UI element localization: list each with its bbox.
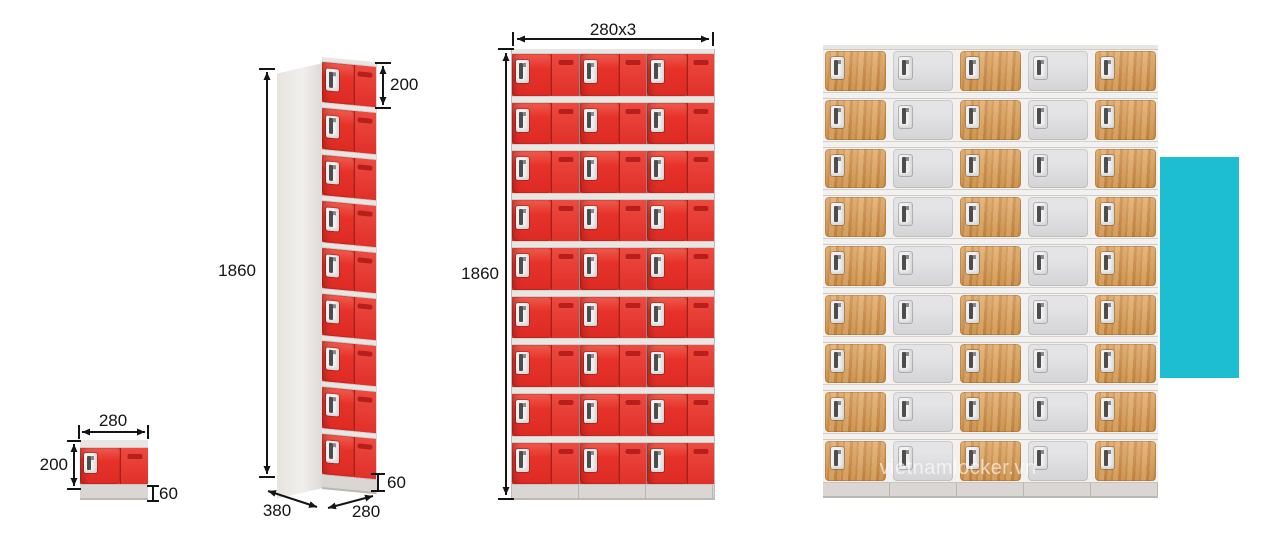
locker-cell-gray (891, 343, 956, 385)
handle-latch (654, 160, 658, 176)
locker-body (354, 158, 376, 201)
locker-door (893, 246, 954, 286)
locker-door (647, 345, 686, 387)
cyan-accent-rectangle (1160, 157, 1239, 378)
locker-door (647, 103, 686, 145)
locker-cell-wood (823, 148, 888, 190)
locker-row (322, 201, 376, 247)
locker-cell-red (512, 54, 579, 96)
handle-latch (834, 352, 838, 368)
locker-door (512, 345, 551, 387)
door-handle (516, 352, 529, 375)
handle-latch (902, 60, 906, 76)
locker-body (551, 54, 578, 96)
vent-slot (693, 157, 708, 162)
row-separator (823, 287, 1158, 294)
door-handle (831, 350, 844, 372)
tall-locker-side-panel (277, 63, 323, 499)
door-handle (516, 400, 529, 423)
locker-body (619, 443, 646, 485)
vent-slot (358, 211, 373, 217)
locker-row (322, 387, 376, 433)
locker-body (120, 448, 148, 484)
door-handle (831, 252, 844, 274)
locker-cell-wood (1093, 196, 1158, 238)
locker-door (647, 151, 686, 193)
vent-slot (558, 351, 573, 356)
handle-latch (519, 451, 523, 467)
tall-base-label: 60 (387, 474, 417, 491)
locker-cell-gray (1026, 245, 1091, 287)
locker-cell-wood (1093, 440, 1158, 482)
locker-door (893, 344, 954, 384)
row-separator (823, 336, 1158, 343)
locker-cell-gray (891, 148, 956, 190)
locker-row (322, 108, 376, 154)
locker-cell-wood (958, 50, 1023, 92)
locker-cell-red (322, 62, 376, 108)
locker-cell-gray (891, 99, 956, 141)
locker-body (551, 297, 578, 339)
handle-latch (969, 157, 973, 173)
vent-slot (693, 60, 708, 65)
locker-door (960, 51, 1021, 91)
locker-door (1028, 51, 1089, 91)
locker-door (647, 443, 686, 485)
handle-latch (587, 354, 591, 370)
locker-cell-red (322, 387, 376, 433)
handle-latch (587, 403, 591, 419)
handle-latch (329, 257, 333, 273)
door-handle (84, 453, 97, 473)
locker-cell-red (512, 345, 579, 387)
locker-door (1028, 344, 1089, 384)
door-handle (326, 161, 339, 184)
locker-door (1028, 197, 1089, 237)
vent-slot (626, 400, 641, 405)
locker-door (1095, 441, 1156, 481)
vent-slot (626, 254, 641, 259)
door-handle (831, 106, 844, 128)
locker-door (825, 197, 886, 237)
locker-door (825, 246, 886, 286)
handle-latch (587, 257, 591, 273)
door-handle (584, 449, 597, 472)
door-handle (516, 303, 529, 326)
locker-cell-wood (1093, 99, 1158, 141)
locker-door (893, 392, 954, 432)
handle-latch (902, 352, 906, 368)
row-separator (512, 338, 714, 345)
locker-row (823, 148, 1158, 190)
handle-latch (587, 63, 591, 79)
locker-body (687, 297, 714, 339)
locker-cell-red (580, 394, 647, 436)
handle-latch (329, 304, 333, 320)
door-handle (651, 254, 664, 277)
locker-body (354, 297, 376, 340)
handle-latch (834, 157, 838, 173)
row-separator (823, 92, 1158, 99)
locker-body (619, 345, 646, 387)
handle-latch (969, 60, 973, 76)
locker-door (1095, 392, 1156, 432)
locker-door (960, 344, 1021, 384)
door-handle (326, 68, 339, 91)
locker-cell-gray (1026, 294, 1091, 336)
handle-latch (587, 112, 591, 128)
locker-cell-wood (823, 343, 888, 385)
vent-slot (358, 257, 373, 263)
handle-latch (1037, 401, 1041, 417)
door-handle (1101, 301, 1114, 323)
locker-row (512, 394, 714, 436)
handle-latch (1104, 303, 1108, 319)
locker-door (647, 394, 686, 436)
door-handle (1101, 447, 1114, 469)
handle-latch (834, 255, 838, 271)
locker-door (580, 443, 619, 485)
locker-cell-red (580, 443, 647, 485)
locker-cell-wood (823, 294, 888, 336)
locker-door (322, 108, 354, 151)
vent-slot (693, 351, 708, 356)
locker-body (687, 151, 714, 193)
locker-row (322, 434, 376, 480)
door-handle (1034, 398, 1047, 420)
locker-cell-wood (823, 196, 888, 238)
handle-latch (969, 206, 973, 222)
handle-latch (902, 303, 906, 319)
locker-door (1028, 246, 1089, 286)
door-handle (1034, 57, 1047, 79)
locker-door (825, 392, 886, 432)
door-handle (651, 206, 664, 229)
locker-body (551, 200, 578, 242)
vent-slot (693, 206, 708, 211)
locker-door (580, 345, 619, 387)
locker-body (354, 111, 376, 154)
locker-door (580, 54, 619, 96)
locker-cell-red (647, 345, 714, 387)
locker-door (960, 197, 1021, 237)
door-handle (899, 155, 912, 177)
handle-latch (519, 257, 523, 273)
locker-door (580, 200, 619, 242)
door-handle (966, 155, 979, 177)
locker-cell-wood (1093, 343, 1158, 385)
locker-door (512, 248, 551, 290)
watermark: vietnamlocker.vn (838, 457, 1078, 480)
locker-body (551, 151, 578, 193)
vent-slot (358, 118, 373, 124)
handle-latch (329, 211, 333, 227)
handle-latch (1104, 157, 1108, 173)
door-handle (651, 352, 664, 375)
locker-cell-gray (891, 50, 956, 92)
handle-latch (654, 354, 658, 370)
vent-slot (358, 71, 373, 77)
handle-latch (902, 401, 906, 417)
locker-body (687, 200, 714, 242)
door-handle (899, 301, 912, 323)
row-separator (512, 96, 714, 103)
door-handle (326, 115, 339, 138)
locker-door (1095, 344, 1156, 384)
locker-cell-red (647, 297, 714, 339)
handle-latch (654, 306, 658, 322)
tall-door-label: 200 (390, 76, 430, 93)
locker-door (893, 100, 954, 140)
tall-locker-doors (322, 62, 376, 479)
door-handle (516, 254, 529, 277)
locker-cell-wood (823, 99, 888, 141)
locker-door (893, 295, 954, 335)
locker-cell-red (647, 54, 714, 96)
vent-slot (358, 396, 373, 402)
locker-cell-gray (891, 391, 956, 433)
handle-latch (1104, 60, 1108, 76)
locker-cell-wood (958, 196, 1023, 238)
locker-door (580, 297, 619, 339)
vent-slot (358, 443, 373, 449)
locker-cell-red (512, 297, 579, 339)
locker-cell-red (512, 151, 579, 193)
locker-door (647, 297, 686, 339)
locker-cell-gray (1026, 148, 1091, 190)
locker-row (512, 200, 714, 242)
handle-latch (519, 403, 523, 419)
locker-door (1028, 149, 1089, 189)
locker-door (1095, 295, 1156, 335)
door-handle (326, 440, 339, 463)
handle-latch (519, 306, 523, 322)
locker-cell-gray (891, 245, 956, 287)
locker-body (687, 443, 714, 485)
row-separator (512, 193, 714, 200)
handle-latch (1037, 352, 1041, 368)
vent-slot (626, 206, 641, 211)
locker-body (619, 394, 646, 436)
locker-row (512, 103, 714, 145)
locker-cell-red (647, 443, 714, 485)
vent-slot (558, 400, 573, 405)
door-handle (1101, 252, 1114, 274)
vent-slot (626, 109, 641, 114)
locker-cell-wood (958, 148, 1023, 190)
handle-latch (519, 160, 523, 176)
locker-door (322, 62, 354, 105)
locker-row (823, 245, 1158, 287)
locker-row (80, 448, 148, 484)
five-column-locker (823, 45, 1158, 498)
door-handle (584, 157, 597, 180)
locker-door (960, 392, 1021, 432)
door-handle (1101, 398, 1114, 420)
locker-door (512, 151, 551, 193)
vent-slot (127, 454, 142, 459)
locker-row (823, 294, 1158, 336)
handle-latch (654, 451, 658, 467)
locker-cell-red (322, 434, 376, 480)
vent-slot (558, 254, 573, 259)
locker-row (823, 99, 1158, 141)
locker-cell-red (80, 448, 148, 484)
locker-cell-gray (1026, 391, 1091, 433)
locker-door (1095, 246, 1156, 286)
locker-door (893, 51, 954, 91)
small-width-label: 280 (83, 412, 143, 429)
handle-latch (329, 350, 333, 366)
locker-door (647, 200, 686, 242)
door-handle (1101, 106, 1114, 128)
locker-body (551, 443, 578, 485)
door-handle (899, 350, 912, 372)
row-separator (823, 238, 1158, 245)
door-handle (651, 449, 664, 472)
door-handle (584, 400, 597, 423)
locker-cell-wood (823, 391, 888, 433)
locker-cell-wood (1093, 50, 1158, 92)
locker-door (322, 294, 354, 337)
locker-row (322, 294, 376, 340)
vent-slot (626, 303, 641, 308)
locker-body (551, 345, 578, 387)
handle-latch (519, 63, 523, 79)
handle-latch (329, 164, 333, 180)
vent-slot (558, 303, 573, 308)
locker-door (825, 100, 886, 140)
handle-latch (519, 354, 523, 370)
locker-cell-wood (958, 245, 1023, 287)
locker-cell-gray (1026, 50, 1091, 92)
locker-door (825, 295, 886, 335)
locker-body (354, 251, 376, 294)
row-separator (823, 189, 1158, 196)
locker-cell-gray (1026, 99, 1091, 141)
door-handle (584, 352, 597, 375)
door-handle (326, 394, 339, 417)
door-handle (651, 109, 664, 132)
locker-cell-red (580, 103, 647, 145)
door-handle (1034, 155, 1047, 177)
locker-body (687, 248, 714, 290)
locker-body (687, 54, 714, 96)
locker-door (580, 151, 619, 193)
locker-cell-red (322, 341, 376, 387)
locker-row (512, 248, 714, 290)
locker-door (893, 149, 954, 189)
vent-slot (626, 60, 641, 65)
locker-row (322, 248, 376, 294)
locker-door (893, 197, 954, 237)
tall-height-label: 1860 (210, 262, 256, 279)
door-handle (899, 106, 912, 128)
door-handle (1034, 203, 1047, 225)
handle-latch (587, 209, 591, 225)
locker-door (1028, 295, 1089, 335)
vent-slot (693, 303, 708, 308)
door-handle (1034, 301, 1047, 323)
locker-body (551, 248, 578, 290)
locker-cell-gray (891, 196, 956, 238)
locker-door (1095, 197, 1156, 237)
locker-cell-wood (1093, 148, 1158, 190)
vent-slot (358, 164, 373, 170)
locker-body (551, 103, 578, 145)
locker-body (354, 390, 376, 433)
handle-latch (1037, 108, 1041, 124)
vent-slot (693, 254, 708, 259)
door-handle (584, 254, 597, 277)
locker-row (823, 50, 1158, 92)
locker-door (960, 295, 1021, 335)
locker-cell-red (322, 294, 376, 340)
row-separator (823, 433, 1158, 440)
row-separator (512, 290, 714, 297)
door-handle (326, 301, 339, 324)
locker-door (960, 100, 1021, 140)
row-separator (512, 387, 714, 394)
locker-row (322, 155, 376, 201)
three-column-doors (512, 54, 714, 484)
locker-cell-wood (823, 50, 888, 92)
handle-latch (969, 401, 973, 417)
locker-cell-wood (958, 391, 1023, 433)
locker-body (687, 345, 714, 387)
locker-door (80, 448, 120, 484)
locker-cell-red (322, 155, 376, 201)
door-handle (831, 398, 844, 420)
locker-row (823, 391, 1158, 433)
row-separator (512, 144, 714, 151)
locker-door (1095, 51, 1156, 91)
door-handle (1101, 155, 1114, 177)
handle-latch (969, 108, 973, 124)
door-handle (966, 57, 979, 79)
row-separator (823, 141, 1158, 148)
locker-row (322, 62, 376, 108)
locker-cell-red (322, 108, 376, 154)
handle-latch (834, 206, 838, 222)
locker-door (322, 341, 354, 384)
locker-body (354, 344, 376, 387)
door-handle (516, 157, 529, 180)
locker-door (1028, 392, 1089, 432)
tall-depth-label: 380 (252, 502, 302, 519)
locker-base (80, 484, 148, 500)
locker-door (322, 387, 354, 430)
locker-row (823, 343, 1158, 385)
handle-latch (329, 71, 333, 87)
locker-cell-gray (891, 294, 956, 336)
vent-slot (626, 449, 641, 454)
row-separator (823, 384, 1158, 391)
locker-door (322, 201, 354, 244)
locker-cell-red (580, 248, 647, 290)
locker-door (647, 248, 686, 290)
handle-latch (587, 306, 591, 322)
small-locker-doors (80, 448, 148, 484)
handle-latch (1104, 108, 1108, 124)
locker-cell-red (647, 394, 714, 436)
locker-row (512, 345, 714, 387)
handle-latch (519, 112, 523, 128)
door-handle (899, 252, 912, 274)
locker-row (512, 297, 714, 339)
door-handle (966, 252, 979, 274)
locker-cell-wood (1093, 245, 1158, 287)
